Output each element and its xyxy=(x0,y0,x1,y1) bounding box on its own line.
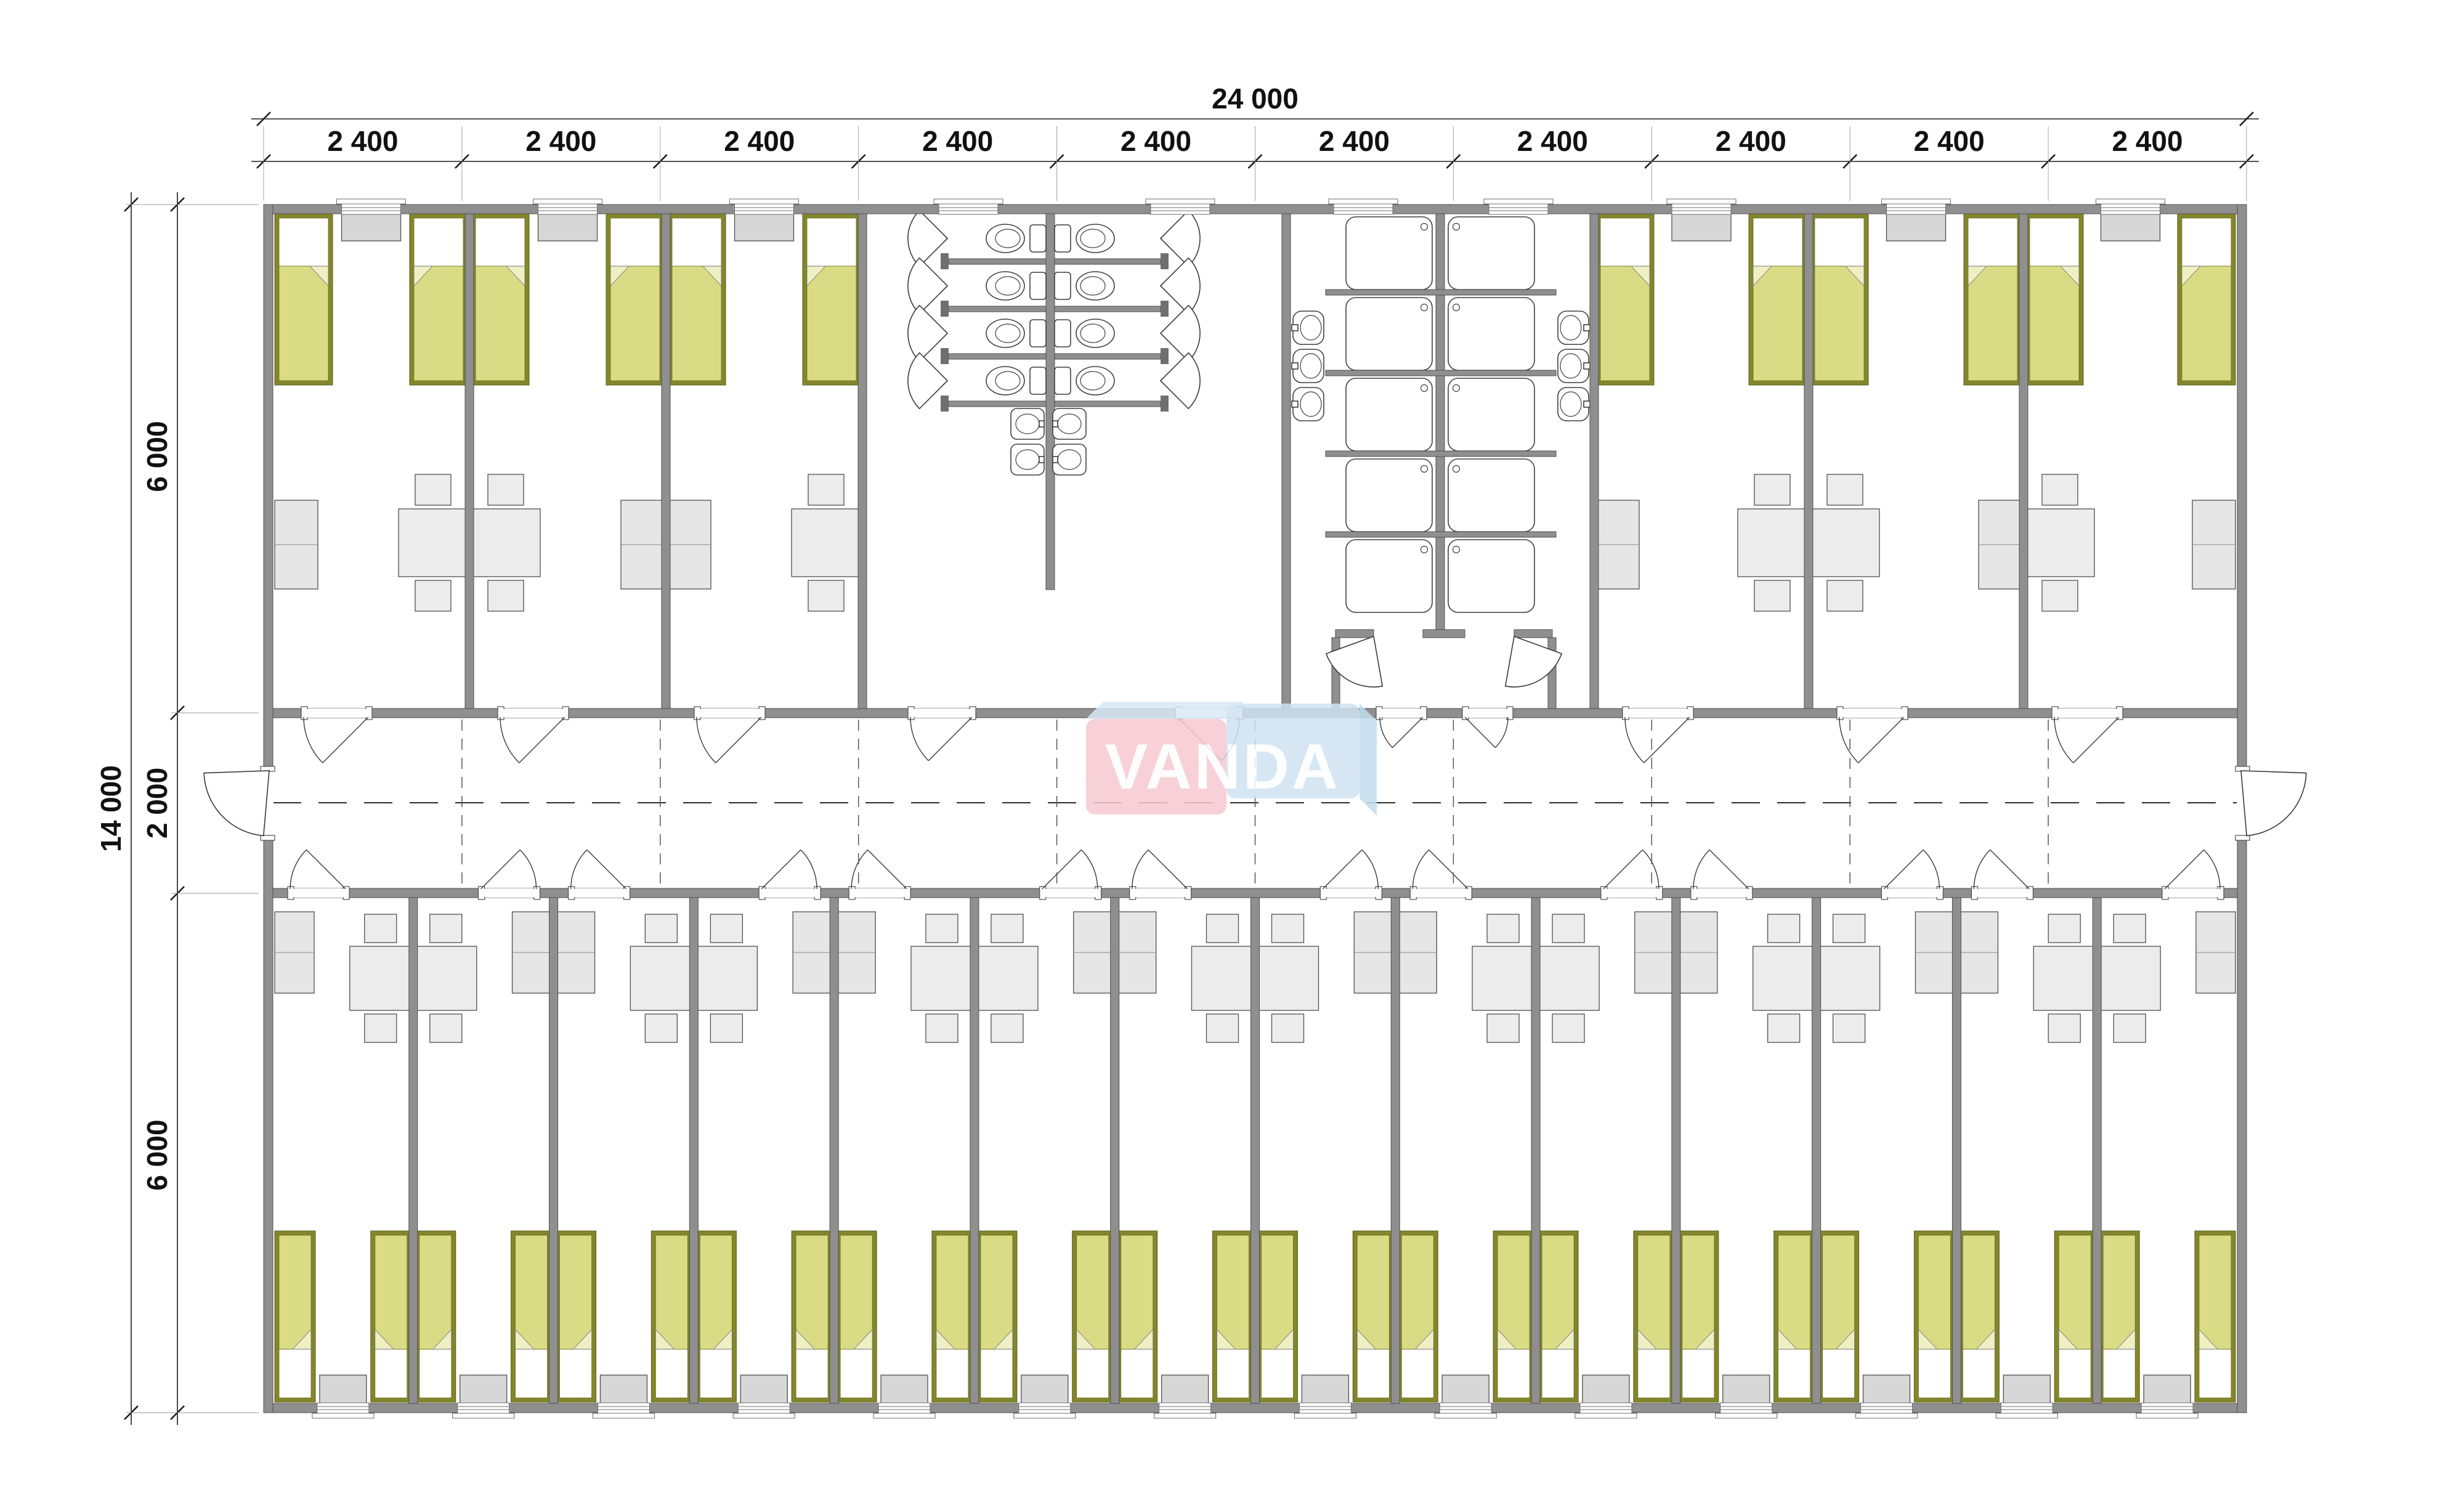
window xyxy=(1667,199,1736,214)
chair xyxy=(1272,1014,1304,1042)
logo-text: VANDA xyxy=(1105,731,1340,803)
room-door-swing-arc xyxy=(1412,850,1429,889)
chair xyxy=(415,474,451,505)
toilet-stall xyxy=(1055,367,1114,395)
bed-pillow xyxy=(1918,1349,1950,1398)
room-door-leaf xyxy=(1858,717,1904,763)
bed xyxy=(606,214,664,385)
room-door-swing-arc xyxy=(1625,717,1644,763)
toilet-stall xyxy=(1055,319,1114,347)
bedroom-bottom xyxy=(1678,912,1815,1418)
wardrobe xyxy=(1979,500,2022,589)
stall-door-stub xyxy=(941,348,949,364)
bed xyxy=(1749,214,1807,385)
chair xyxy=(1552,914,1584,943)
bed xyxy=(1213,1231,1254,1402)
bed-mattress xyxy=(672,266,721,381)
window xyxy=(1435,1403,1496,1418)
window xyxy=(337,199,406,214)
room-door-leaf xyxy=(1042,850,1082,889)
wardrobe xyxy=(668,500,711,589)
bed-pillow xyxy=(700,1349,732,1398)
partition-wall xyxy=(858,214,867,708)
room-door-swing-arc xyxy=(801,850,817,889)
wardrobe xyxy=(2192,500,2235,589)
chair xyxy=(808,474,844,505)
window-sill xyxy=(1154,1413,1216,1418)
bed xyxy=(792,1231,832,1402)
chair xyxy=(1768,914,1800,943)
bed xyxy=(556,1231,596,1402)
wardrobe xyxy=(1117,912,1156,993)
toilet-bowl xyxy=(986,224,1024,253)
dim-label-module-width: 2 400 xyxy=(1121,125,1191,157)
bedroom-bottom xyxy=(1818,912,1955,1418)
partition-wall xyxy=(1672,898,1680,1403)
sink xyxy=(1292,311,1324,344)
bed-pillow xyxy=(981,1349,1013,1398)
bed-pillow xyxy=(840,1349,872,1398)
bed-pillow xyxy=(279,218,328,266)
stall-door-stub xyxy=(1161,348,1169,364)
bed-pillow xyxy=(672,218,721,266)
bedroom-bottom xyxy=(1958,912,2095,1418)
stall-partition xyxy=(949,259,1046,264)
toilet-stall xyxy=(1055,272,1114,300)
stall-door-stub xyxy=(941,253,949,269)
washbasin xyxy=(1011,408,1044,439)
bed-pillow xyxy=(936,1349,968,1398)
table xyxy=(630,946,692,1010)
stall-door-stub xyxy=(1161,253,1169,269)
shower-tray xyxy=(1346,298,1432,370)
wardrobe xyxy=(513,912,552,993)
window-cabinet xyxy=(320,1375,367,1403)
bed-mattress xyxy=(560,1235,592,1349)
bedroom-bottom xyxy=(1538,912,1674,1418)
tap xyxy=(1584,325,1590,331)
chair xyxy=(645,1014,677,1042)
stall-partition xyxy=(1055,354,1161,359)
bed-pillow xyxy=(1778,1349,1810,1398)
chair xyxy=(2042,580,2078,611)
table xyxy=(2033,946,2095,1010)
tap xyxy=(1039,421,1044,427)
wardrobe xyxy=(2196,912,2235,993)
dim-label-module-width: 2 400 xyxy=(1517,125,1588,157)
wc-room xyxy=(908,211,1200,590)
wc-spine-wall xyxy=(1046,214,1055,590)
bed-mattress xyxy=(375,1235,407,1349)
table-and-chairs xyxy=(2033,914,2095,1042)
room-door-swing-arc xyxy=(290,850,306,889)
stall-partition xyxy=(1055,401,1161,407)
window xyxy=(934,199,1003,214)
room-door-swing-arc xyxy=(520,850,536,889)
shower-partition xyxy=(1326,370,1556,376)
toilet-bowl xyxy=(1076,224,1114,253)
bed-pillow xyxy=(796,1349,828,1398)
dim-label-total-depth: 14 000 xyxy=(95,765,127,852)
bedroom-top xyxy=(471,199,664,611)
partition-wall xyxy=(2093,898,2101,1403)
window xyxy=(312,1403,374,1418)
partition-wall xyxy=(2019,214,2028,708)
toilet-cistern xyxy=(1055,367,1071,394)
window-cabinet xyxy=(2144,1375,2190,1403)
bed-pillow xyxy=(1542,1349,1574,1398)
bed-pillow xyxy=(1682,1349,1714,1398)
floor-plan-drawing: 24 0002 4002 4002 4002 4002 4002 4002 40… xyxy=(0,0,2464,1502)
room-door-leaf xyxy=(1148,850,1188,889)
window-sill xyxy=(1146,199,1215,204)
room-door-leaf xyxy=(306,850,346,889)
room-door-leaf xyxy=(1884,850,1923,889)
bed xyxy=(2054,1231,2095,1402)
wardrobe xyxy=(275,912,314,993)
window xyxy=(593,1403,654,1418)
shower-tray xyxy=(1448,459,1534,532)
bedroom-bottom xyxy=(1397,912,1534,1418)
toilet-bowl xyxy=(1076,367,1114,395)
window xyxy=(1484,199,1553,214)
table-and-chairs xyxy=(1192,914,1254,1042)
bed-pillow xyxy=(375,1349,407,1398)
window-sill xyxy=(1716,1413,1777,1418)
room-door-swing-arc xyxy=(1081,850,1097,889)
toilet-stall xyxy=(986,224,1046,253)
bed xyxy=(1634,1231,1674,1402)
toilet-stall xyxy=(986,367,1046,395)
dim-label-total-width: 24 000 xyxy=(1212,83,1299,115)
window-sill xyxy=(1484,199,1553,204)
entrance-door-swing xyxy=(2241,771,2306,836)
toilet-bowl xyxy=(1076,319,1114,347)
bed-mattress xyxy=(1497,1235,1530,1349)
bed xyxy=(836,1231,877,1402)
table-and-chairs xyxy=(2099,914,2160,1042)
wardrobe xyxy=(836,912,875,993)
chair xyxy=(645,914,677,943)
bed-pillow xyxy=(516,1349,548,1398)
partition-wall xyxy=(1282,214,1291,708)
bed xyxy=(1678,1231,1719,1402)
bed xyxy=(1493,1231,1534,1402)
stall-door-stub xyxy=(1161,301,1169,317)
toilet-cistern xyxy=(1055,225,1071,252)
bed-pillow xyxy=(279,1349,311,1398)
tap xyxy=(1292,325,1298,331)
shower-tray xyxy=(1346,217,1432,290)
shower-tray xyxy=(1448,378,1534,451)
toilet-stall xyxy=(986,272,1046,300)
window-cabinet xyxy=(1723,1375,1770,1403)
window-sill xyxy=(1014,1413,1076,1418)
table xyxy=(1472,946,1534,1010)
window-cabinet xyxy=(1302,1375,1348,1403)
bed-mattress xyxy=(2182,266,2231,381)
chair xyxy=(365,1014,397,1042)
table-and-chairs xyxy=(1257,914,1319,1042)
window xyxy=(1294,1403,1356,1418)
bed-pillow xyxy=(807,218,856,266)
bed-mattress xyxy=(516,1235,548,1349)
stall-partition xyxy=(949,306,1046,312)
entrance-door-swing xyxy=(204,771,269,836)
bedroom-bottom xyxy=(2099,912,2235,1418)
table-and-chairs xyxy=(399,474,468,611)
bed-pillow xyxy=(1823,1349,1855,1398)
window-cabinet xyxy=(1162,1375,1209,1403)
bed-pillow xyxy=(560,1349,592,1398)
bedroom-bottom xyxy=(275,912,411,1418)
chair xyxy=(488,580,524,611)
bedroom-top xyxy=(275,199,468,611)
room-door-leaf xyxy=(2073,717,2119,763)
table-and-chairs xyxy=(2025,474,2094,611)
sink xyxy=(1292,349,1324,383)
partition-wall xyxy=(689,898,698,1403)
room-door-swing-arc xyxy=(1839,717,1858,763)
chair xyxy=(1754,580,1790,611)
bed-pillow xyxy=(1217,1349,1249,1398)
bed xyxy=(275,214,333,385)
wardrobe xyxy=(556,912,595,993)
table xyxy=(1818,946,1880,1010)
partition-wall xyxy=(662,214,670,708)
stall-partition xyxy=(949,354,1046,359)
chair xyxy=(1827,474,1863,505)
window-cabinet xyxy=(735,214,794,241)
room-door-leaf xyxy=(1603,850,1643,889)
lobby-wall xyxy=(1335,630,1374,638)
bed-mattress xyxy=(1262,1235,1294,1349)
logo-box-facet xyxy=(1086,702,1244,719)
window-cabinet xyxy=(1442,1375,1489,1403)
floor-plan-canvas: 24 0002 4002 4002 4002 4002 4002 4002 40… xyxy=(0,0,2464,1502)
bed-mattress xyxy=(807,266,856,381)
room-door-swing-arc xyxy=(304,717,323,763)
shower-entry-door-leaf xyxy=(1465,717,1496,748)
room-door-leaf xyxy=(1323,850,1362,889)
table-and-chairs xyxy=(695,914,757,1042)
stall-partition xyxy=(1055,306,1161,312)
table-and-chairs xyxy=(350,914,411,1042)
shower-partition xyxy=(1326,451,1556,457)
room-door-leaf xyxy=(2165,850,2204,889)
room-door-leaf xyxy=(587,850,626,889)
bed-mattress xyxy=(1918,1235,1950,1349)
tap xyxy=(1039,457,1044,463)
chair xyxy=(2113,914,2146,943)
bed xyxy=(1117,1231,1157,1402)
tap xyxy=(1584,363,1590,369)
partition-wall xyxy=(970,898,979,1403)
bed-mattress xyxy=(1638,1235,1670,1349)
sink xyxy=(1558,349,1590,383)
stall-door-stub xyxy=(941,301,949,317)
toilet-cistern xyxy=(1030,272,1046,299)
bed-pillow xyxy=(2103,1349,2135,1398)
chair xyxy=(1207,1014,1239,1042)
window-cabinet xyxy=(881,1375,928,1403)
chair xyxy=(710,914,742,943)
bedroom-bottom xyxy=(976,912,1113,1418)
bed-mattress xyxy=(414,266,463,381)
bed-mattress xyxy=(1542,1235,1574,1349)
stall-partition xyxy=(949,401,1046,407)
vanda-logo-watermark: VANDA xyxy=(1086,702,1377,816)
bedroom-top xyxy=(2025,199,2235,611)
bed xyxy=(275,1231,315,1402)
lobby-wall xyxy=(1423,630,1465,638)
room-door-swing-arc xyxy=(1693,850,1709,889)
chair xyxy=(2113,1014,2146,1042)
window xyxy=(1329,199,1398,214)
table-and-chairs xyxy=(1818,914,1880,1042)
window-sill xyxy=(1329,199,1398,204)
toilet-cistern xyxy=(1030,225,1046,252)
toilet-cistern xyxy=(1055,272,1071,299)
bed-mattress xyxy=(279,1235,311,1349)
dim-label-module-width: 2 400 xyxy=(1319,125,1390,157)
table xyxy=(976,946,1038,1010)
window-sill xyxy=(873,1413,935,1418)
window xyxy=(1014,1403,1076,1418)
window xyxy=(453,1403,514,1418)
shower-room xyxy=(1292,214,1590,708)
exterior-wall-bottom xyxy=(264,1403,2247,1413)
room-door-swing-arc xyxy=(1974,850,1990,889)
bed xyxy=(803,214,861,385)
dim-label-module-width: 2 400 xyxy=(327,125,398,157)
window-cabinet xyxy=(2003,1375,2050,1403)
bed-pillow xyxy=(2199,1349,2231,1398)
window xyxy=(873,1403,935,1418)
bed-pillow xyxy=(414,218,463,266)
chair xyxy=(365,914,397,943)
shower-tray xyxy=(1448,540,1534,612)
bed xyxy=(2099,1231,2139,1402)
window-cabinet xyxy=(600,1375,647,1403)
window-sill xyxy=(593,1413,654,1418)
window-sill xyxy=(533,199,602,204)
bed xyxy=(1596,214,1654,385)
dim-label-zone-depth: 6 000 xyxy=(141,421,173,492)
bed-pillow xyxy=(1401,1349,1433,1398)
shower-tray xyxy=(1346,459,1432,532)
wardrobe xyxy=(1635,912,1674,993)
toilet-bowl xyxy=(986,319,1024,347)
table xyxy=(1257,946,1319,1010)
partition-wall xyxy=(465,214,474,708)
bedroom-bottom xyxy=(1257,912,1394,1418)
bed-pillow xyxy=(419,1349,452,1398)
room-door-leaf xyxy=(1990,850,2030,889)
window-sill xyxy=(1294,1413,1356,1418)
chair xyxy=(1833,914,1865,943)
chair xyxy=(1487,1014,1519,1042)
table-and-chairs xyxy=(1472,914,1534,1042)
room-door-swing-arc xyxy=(1923,850,1939,889)
bed-mattress xyxy=(419,1235,452,1349)
bedroom-bottom xyxy=(695,912,832,1418)
bed-pillow xyxy=(1357,1349,1389,1398)
chair xyxy=(2042,474,2078,505)
bed-mattress xyxy=(1217,1235,1249,1349)
chair xyxy=(1754,474,1790,505)
stall-door-stub xyxy=(1161,396,1169,412)
chair xyxy=(1552,1014,1584,1042)
table-and-chairs xyxy=(471,474,540,611)
bed xyxy=(1958,1231,1999,1402)
wc-door-leaf xyxy=(928,717,972,761)
bed-mattress xyxy=(936,1235,968,1349)
window xyxy=(1154,1403,1216,1418)
partition-wall xyxy=(1590,214,1599,708)
bed-pillow xyxy=(1600,218,1650,266)
wardrobe xyxy=(1074,912,1113,993)
room-door-leaf xyxy=(716,717,761,763)
room-door-leaf xyxy=(519,717,565,763)
bed xyxy=(511,1231,552,1402)
bed-mattress xyxy=(1682,1235,1714,1349)
chair xyxy=(430,914,462,943)
table xyxy=(1810,509,1879,577)
bed-mattress xyxy=(1357,1235,1389,1349)
window-cabinet xyxy=(460,1375,507,1403)
partition-wall xyxy=(830,898,838,1403)
table xyxy=(2025,509,2094,577)
bedroom-top xyxy=(668,199,861,611)
window xyxy=(730,199,799,214)
wardrobe xyxy=(793,912,832,993)
table-and-chairs xyxy=(1810,474,1879,611)
window-sill xyxy=(2136,1413,2198,1418)
bedroom-top xyxy=(1810,199,2022,611)
table xyxy=(911,946,973,1010)
wardrobe xyxy=(1915,912,1955,993)
toilet-stall xyxy=(1055,224,1114,253)
table xyxy=(415,946,477,1010)
chair xyxy=(1272,914,1304,943)
bed-mattress xyxy=(1963,1235,1995,1349)
toilet-bowl xyxy=(986,367,1024,395)
partition-wall xyxy=(1251,898,1260,1403)
room-door-leaf xyxy=(1709,850,1749,889)
room-door-leaf xyxy=(481,850,521,889)
bed xyxy=(1072,1231,1113,1402)
window-sill xyxy=(730,199,799,204)
bed xyxy=(1538,1231,1578,1402)
bed xyxy=(1397,1231,1438,1402)
bed-pillow xyxy=(2182,218,2231,266)
window xyxy=(1716,1403,1777,1418)
chair xyxy=(926,914,958,943)
shower-spine-wall xyxy=(1436,214,1445,630)
table xyxy=(399,509,468,577)
window-sill xyxy=(1667,199,1736,204)
bed-pillow xyxy=(1077,1349,1109,1398)
bed-pillow xyxy=(476,218,525,266)
bed xyxy=(2025,214,2083,385)
bed-mattress xyxy=(1121,1235,1153,1349)
window xyxy=(1996,1403,2057,1418)
table xyxy=(1753,946,1815,1010)
shower-tray xyxy=(1448,217,1534,290)
dim-label-module-width: 2 400 xyxy=(922,125,993,157)
chair xyxy=(991,1014,1023,1042)
